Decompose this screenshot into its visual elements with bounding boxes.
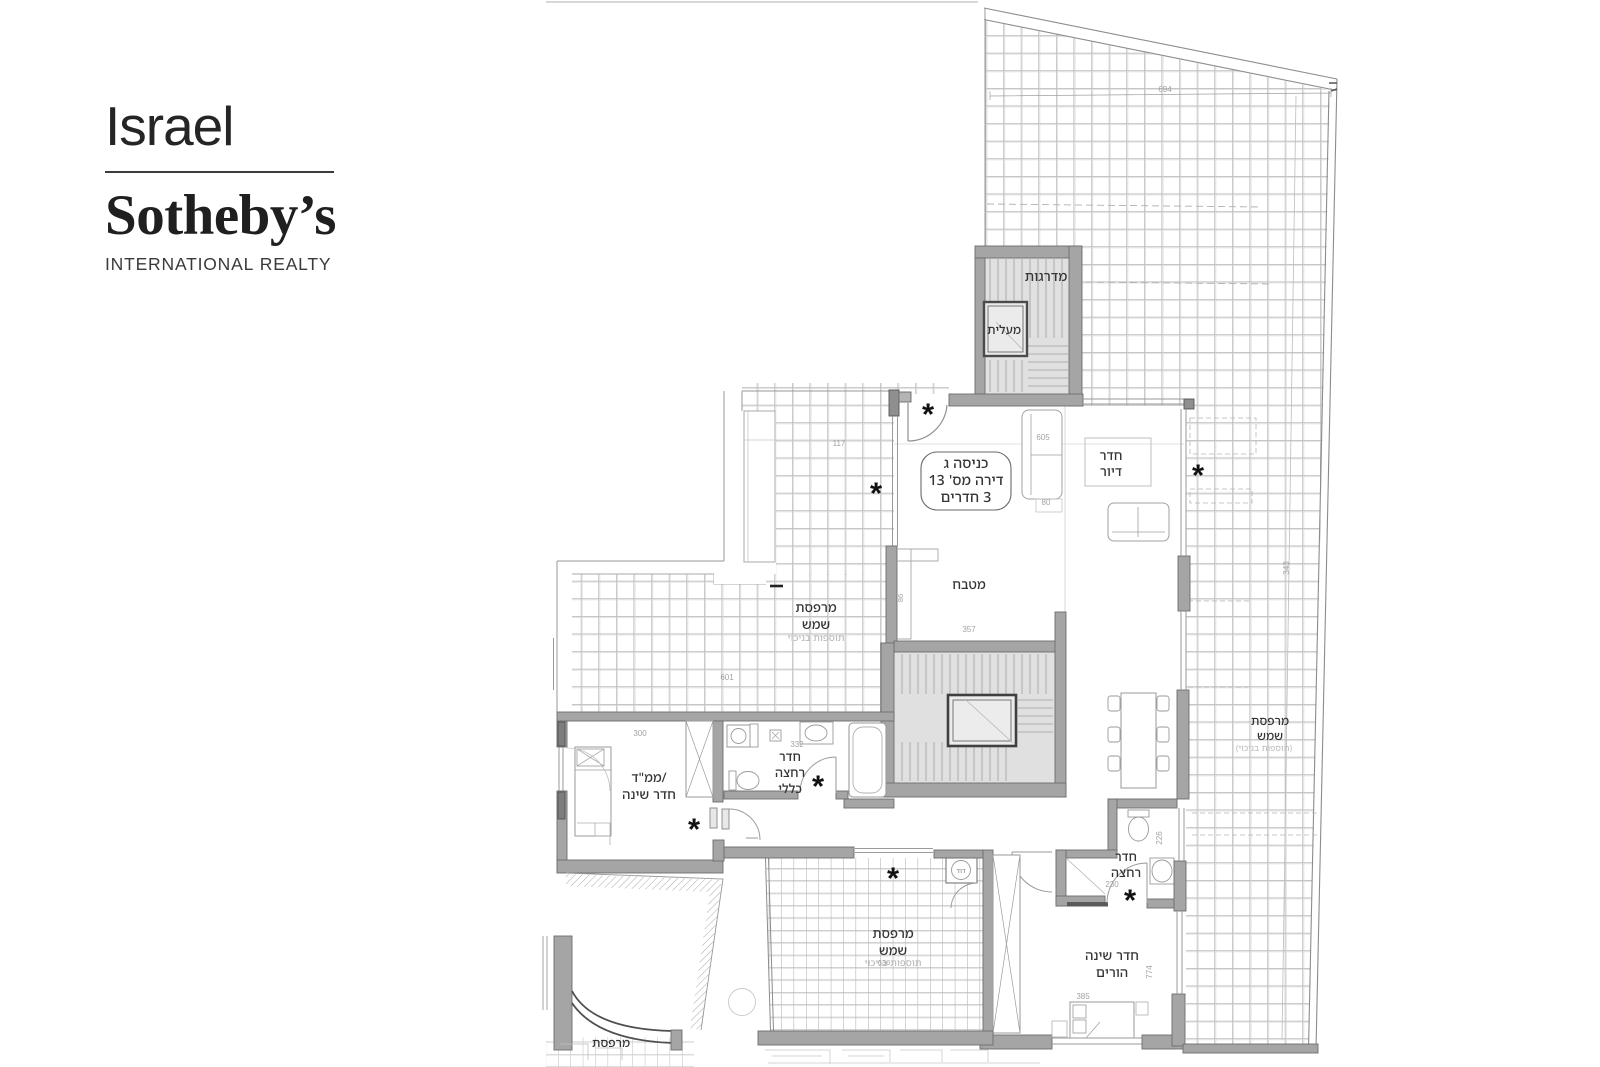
svg-text:601: 601 (720, 673, 734, 682)
svg-text:*: * (688, 811, 701, 846)
svg-text:605: 605 (1036, 433, 1050, 442)
svg-text:*: * (1192, 457, 1205, 492)
svg-text:80: 80 (1042, 498, 1051, 507)
svg-text:385: 385 (1076, 992, 1090, 1001)
svg-text:357: 357 (962, 625, 976, 634)
svg-text:774: 774 (1145, 965, 1154, 979)
svg-text:226: 226 (1155, 831, 1164, 845)
svg-text:343: 343 (1282, 561, 1291, 575)
svg-text:332: 332 (790, 740, 804, 749)
svg-text:*: * (870, 475, 883, 510)
svg-text:*: * (812, 768, 825, 803)
svg-text:230: 230 (1105, 880, 1119, 889)
svg-text:636: 636 (878, 958, 891, 967)
svg-text:*: * (1124, 882, 1137, 917)
svg-text:300: 300 (633, 729, 647, 738)
svg-text:*: * (922, 396, 935, 431)
svg-text:694: 694 (1158, 85, 1172, 94)
svg-text:86: 86 (896, 594, 905, 602)
svg-text:*: * (887, 860, 900, 895)
svg-text:117: 117 (833, 439, 846, 448)
